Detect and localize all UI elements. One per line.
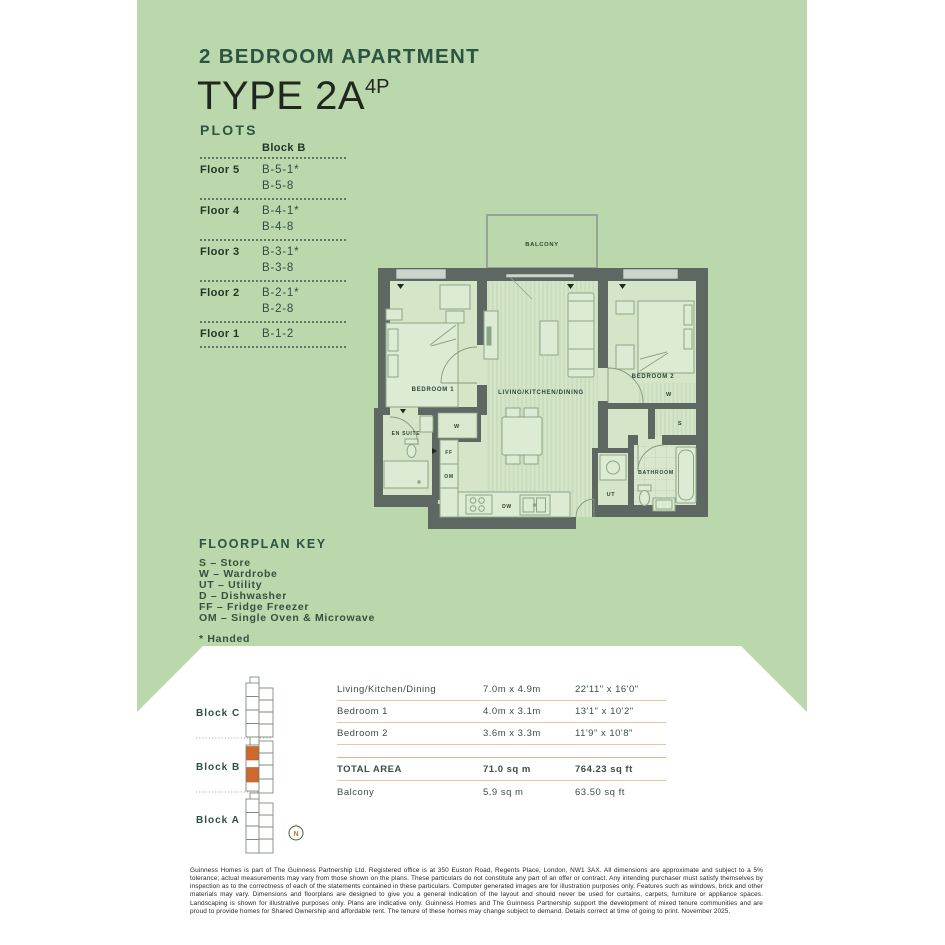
balcony-metric: 5.9 sq m	[483, 787, 575, 798]
bathroom-label: BATHROOM	[638, 470, 674, 476]
floor-label: Floor 2	[200, 285, 262, 317]
room-name: Bedroom 2	[337, 728, 483, 739]
plots-row: Floor 4 B-4-1*B-4-8	[200, 200, 346, 241]
plots-heading: PLOTS	[200, 122, 258, 138]
living-label: LIVING/KITCHEN/DINING	[498, 390, 584, 396]
floor-label: Floor 4	[200, 203, 262, 235]
store-label: S	[678, 421, 682, 427]
plot-id: B-5-8	[262, 178, 299, 194]
key-heading: FLOORPLAN KEY	[199, 537, 375, 551]
floor-label: Floor 1	[200, 326, 262, 342]
dimensions-table: Living/Kitchen/Dining 7.0m x 4.9m 22'11"…	[337, 679, 666, 804]
dimension-row: Bedroom 1 4.0m x 3.1m 13'1" x 10'2"	[337, 701, 666, 723]
total-metric: 71.0 sq m	[483, 764, 575, 775]
total-area-row: TOTAL AREA 71.0 sq m 764.23 sq ft	[337, 757, 666, 781]
dimension-row: Bedroom 2 3.6m x 3.3m 11'9" x 10'8"	[337, 723, 666, 745]
utility-label: UT	[607, 492, 616, 498]
dimension-row: Living/Kitchen/Dining 7.0m x 4.9m 22'11"…	[337, 679, 666, 701]
total-label: TOTAL AREA	[337, 764, 483, 775]
plot-id: B-3-8	[262, 260, 299, 276]
site-blocks	[246, 677, 273, 853]
plot-id: B-3-1*	[262, 244, 299, 260]
room-name: Living/Kitchen/Dining	[337, 684, 483, 695]
plots-row: Floor 1 B-1-2	[200, 323, 346, 348]
siteplan: Block C Block B Block A N	[190, 675, 320, 860]
imperial-size: 11'9" x 10'8"	[575, 728, 666, 739]
page-subtitle: 2 BEDROOM APARTMENT	[199, 45, 480, 69]
block-c-label: Block C	[196, 708, 240, 719]
block-b-label: Block B	[196, 762, 240, 773]
balcony-imperial: 63.50 sq ft	[575, 787, 666, 798]
floorplan-drawing: BALCONY BEDROOM 1 LIVING/KITCHEN/DINING …	[370, 205, 715, 535]
block-labels: Block C Block B Block A	[196, 708, 240, 826]
type-name: TYPE 2A	[197, 74, 365, 118]
plots-column-header: Block B	[200, 141, 346, 159]
balcony-label: BALCONY	[525, 242, 559, 248]
fridge-freezer-label: FF	[445, 450, 453, 456]
plot-id: B-5-1*	[262, 162, 299, 178]
wardrobe-label: W	[454, 424, 460, 430]
plot-id: B-2-8	[262, 301, 299, 317]
imperial-size: 13'1" x 10'2"	[575, 706, 666, 717]
metric-size: 3.6m x 3.3m	[483, 728, 575, 739]
disclaimer-text: Guinness Homes is part of The Guinness P…	[190, 867, 763, 916]
balcony-label: Balcony	[337, 787, 483, 798]
plot-id: B-1-2	[262, 326, 294, 342]
page-title: TYPE 2A4P	[197, 74, 389, 119]
bedroom2-label: BEDROOM 2	[632, 374, 675, 380]
brochure-page: 2 BEDROOM APARTMENT TYPE 2A4P PLOTS Bloc…	[0, 0, 945, 945]
ensuite-label: EN SUITE	[392, 431, 421, 437]
handed-note: * Handed	[199, 633, 375, 645]
block-a-label: Block A	[196, 815, 240, 826]
plot-id: B-4-8	[262, 219, 299, 235]
metric-size: 4.0m x 3.1m	[483, 706, 575, 717]
compass-icon: N	[289, 825, 303, 841]
type-superscript: 4P	[365, 76, 389, 98]
metric-size: 7.0m x 4.9m	[483, 684, 575, 695]
floor-label: Floor 5	[200, 162, 262, 194]
floor-label: Floor 3	[200, 244, 262, 276]
plots-row: Floor 2 B-2-1*B-2-8	[200, 282, 346, 323]
compass-n: N	[293, 831, 298, 838]
oven-microwave-label: OM	[444, 474, 453, 480]
plot-id: B-2-1*	[262, 285, 299, 301]
plots-table: Block B Floor 5 B-5-1*B-5-8 Floor 4 B-4-…	[200, 141, 346, 348]
imperial-size: 22'11" x 16'0"	[575, 684, 666, 695]
floorplan-key: FLOORPLAN KEY S – Store W – Wardrobe UT …	[199, 537, 375, 645]
bedroom1-label: BEDROOM 1	[412, 387, 455, 393]
room-name: Bedroom 1	[337, 706, 483, 717]
plots-row: Floor 3 B-3-1*B-3-8	[200, 241, 346, 282]
wardrobe-label: W	[666, 392, 672, 398]
dishwasher-label: DW	[502, 504, 512, 510]
total-imperial: 764.23 sq ft	[575, 764, 666, 775]
key-item: OM – Single Oven & Microwave	[199, 613, 375, 624]
plot-id: B-4-1*	[262, 203, 299, 219]
plots-row: Floor 5 B-5-1*B-5-8	[200, 159, 346, 200]
balcony-area-row: Balcony 5.9 sq m 63.50 sq ft	[337, 781, 666, 804]
